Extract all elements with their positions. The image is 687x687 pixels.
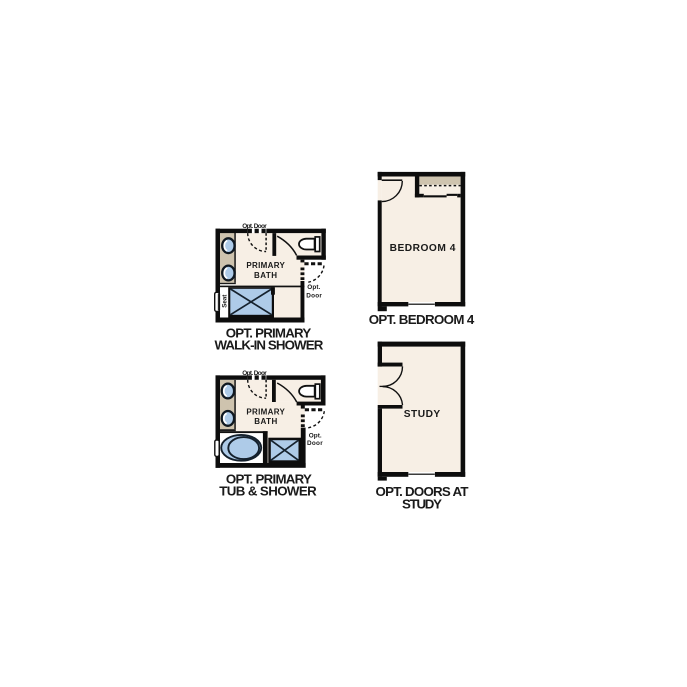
svg-text:BEDROOM 4: BEDROOM 4: [390, 243, 456, 254]
svg-text:Opt. Door: Opt. Door: [242, 223, 267, 230]
svg-text:Opt.: Opt.: [309, 433, 322, 440]
svg-text:BATH: BATH: [254, 417, 277, 426]
svg-text:PRIMARY: PRIMARY: [246, 408, 285, 417]
svg-text:PRIMARY: PRIMARY: [246, 261, 285, 270]
svg-text:BATH: BATH: [254, 271, 277, 280]
svg-text:Door: Door: [306, 293, 322, 300]
svg-text:STUDY: STUDY: [402, 497, 442, 512]
svg-text:Seat: Seat: [222, 294, 229, 308]
svg-text:WALK-IN SHOWER: WALK-IN SHOWER: [215, 338, 324, 353]
svg-text:Door: Door: [307, 440, 323, 447]
svg-text:TUB & SHOWER: TUB & SHOWER: [219, 484, 317, 499]
svg-text:OPT. BEDROOM 4: OPT. BEDROOM 4: [369, 312, 475, 327]
svg-text:Opt. Door: Opt. Door: [242, 370, 267, 377]
svg-text:STUDY: STUDY: [404, 409, 441, 420]
svg-text:Opt.: Opt.: [307, 284, 320, 291]
